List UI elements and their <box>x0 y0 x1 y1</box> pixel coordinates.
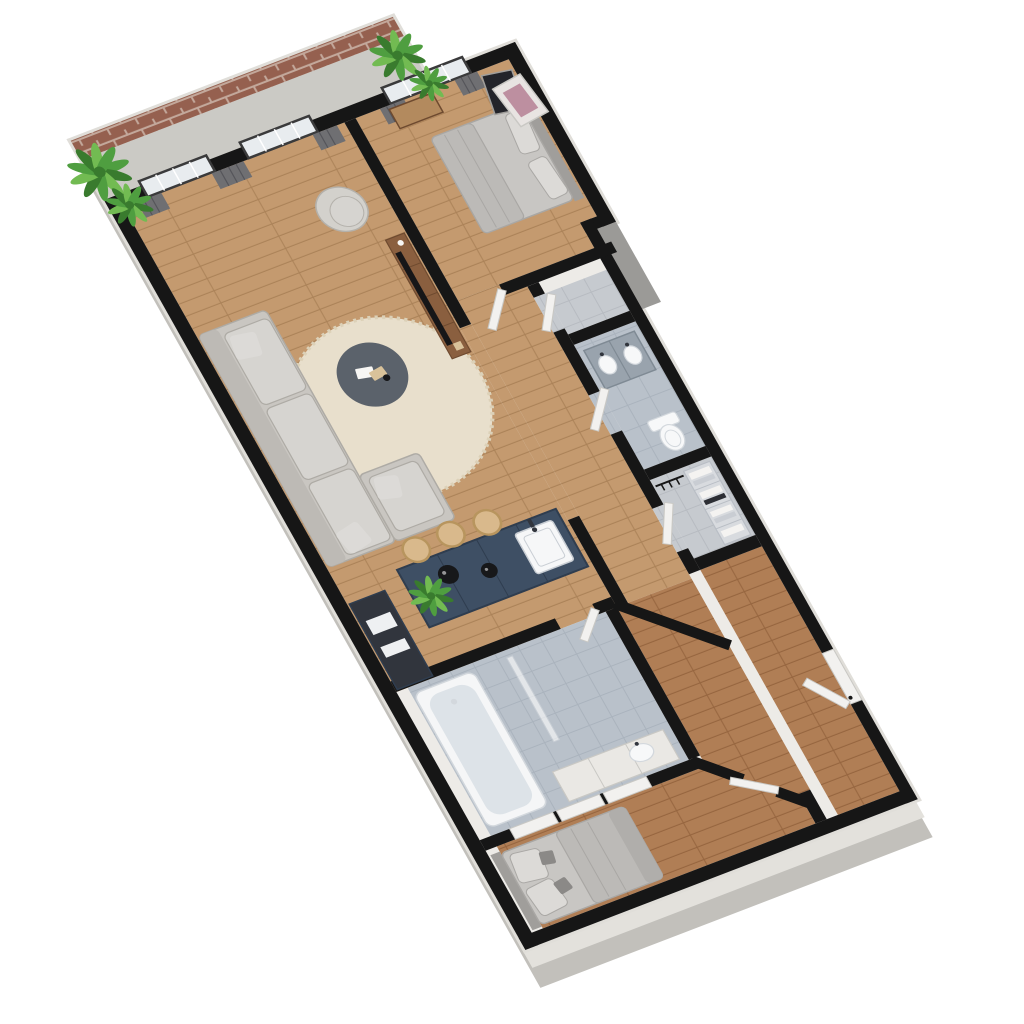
floorplan-main <box>51 0 936 957</box>
floorplan-render <box>0 0 1024 1024</box>
floorplan-3d-svg <box>0 0 1024 1024</box>
laundry-door-leaf <box>663 503 673 545</box>
